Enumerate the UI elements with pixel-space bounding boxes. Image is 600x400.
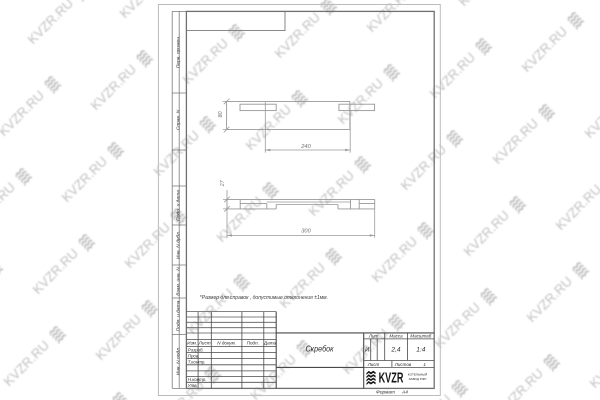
- svg-text:Скребок: Скребок: [306, 344, 335, 354]
- svg-text:Инв. N дубл.: Инв. N дубл.: [175, 231, 181, 259]
- svg-text:N докум.: N докум.: [217, 341, 236, 346]
- svg-text:Взам. инв. N: Взам. инв. N: [175, 267, 181, 296]
- svg-text:1:4: 1:4: [416, 347, 425, 354]
- svg-text:Масштаб: Масштаб: [410, 333, 431, 338]
- svg-text:300: 300: [301, 229, 311, 235]
- svg-text:KVZR: KVZR: [379, 370, 404, 386]
- svg-text:Пров.: Пров.: [188, 353, 200, 358]
- svg-text:27: 27: [220, 179, 226, 187]
- svg-text:А4: А4: [401, 390, 408, 396]
- svg-text:*Размер для справок , допустим: *Размер для справок , допустимые отклоне…: [200, 295, 328, 301]
- svg-text:2,4: 2,4: [390, 347, 400, 354]
- svg-text:Изм.: Изм.: [187, 341, 197, 346]
- svg-text:Подп. и дата: Подп. и дата: [175, 190, 181, 221]
- svg-text:Подп. и дата: Подп. и дата: [175, 300, 181, 331]
- svg-text:Формат: Формат: [376, 390, 395, 396]
- svg-text:И: И: [365, 346, 370, 353]
- svg-text:Инв. N подл.: Инв. N подл.: [175, 347, 181, 376]
- svg-text:240: 240: [300, 144, 311, 150]
- svg-text:Перв. примен.: Перв. примен.: [175, 36, 181, 69]
- svg-text:Масса: Масса: [389, 333, 403, 338]
- svg-text:Утв.: Утв.: [188, 383, 198, 388]
- svg-text:Разраб.: Разраб.: [188, 347, 204, 352]
- svg-text:Листов: Листов: [394, 362, 412, 367]
- svg-text:Лист: Лист: [367, 362, 380, 367]
- svg-text:ЗАВОД РЭП: ЗАВОД РЭП: [409, 377, 427, 381]
- svg-text:Лит.: Лит.: [368, 333, 380, 338]
- svg-text:Лист: Лист: [198, 341, 211, 346]
- svg-text:Подп.: Подп.: [247, 341, 259, 346]
- svg-text:Н.контр.: Н.контр.: [188, 377, 207, 382]
- svg-text:Т.контр.: Т.контр.: [188, 360, 206, 365]
- svg-text:80: 80: [218, 112, 224, 118]
- svg-text:КОТЕЛЬНЫЙ: КОТЕЛЬНЫЙ: [408, 372, 427, 376]
- svg-text:Справ. N: Справ. N: [175, 109, 181, 130]
- svg-text:Дата: Дата: [263, 341, 277, 346]
